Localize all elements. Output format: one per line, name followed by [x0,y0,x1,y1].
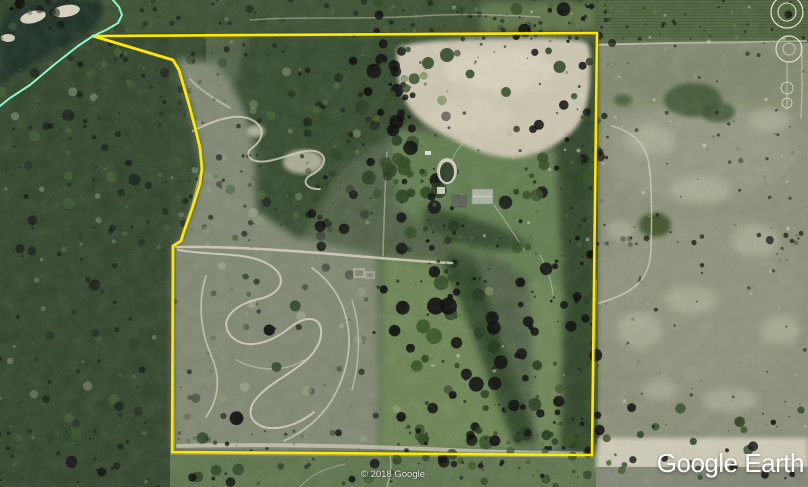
copyright-attribution: © 2018 Google [318,469,468,480]
map-canvas[interactable]: Google Earth © 2018 Google [0,0,808,487]
satellite-imagery [0,0,808,487]
google-earth-watermark: Google Earth [657,448,804,479]
